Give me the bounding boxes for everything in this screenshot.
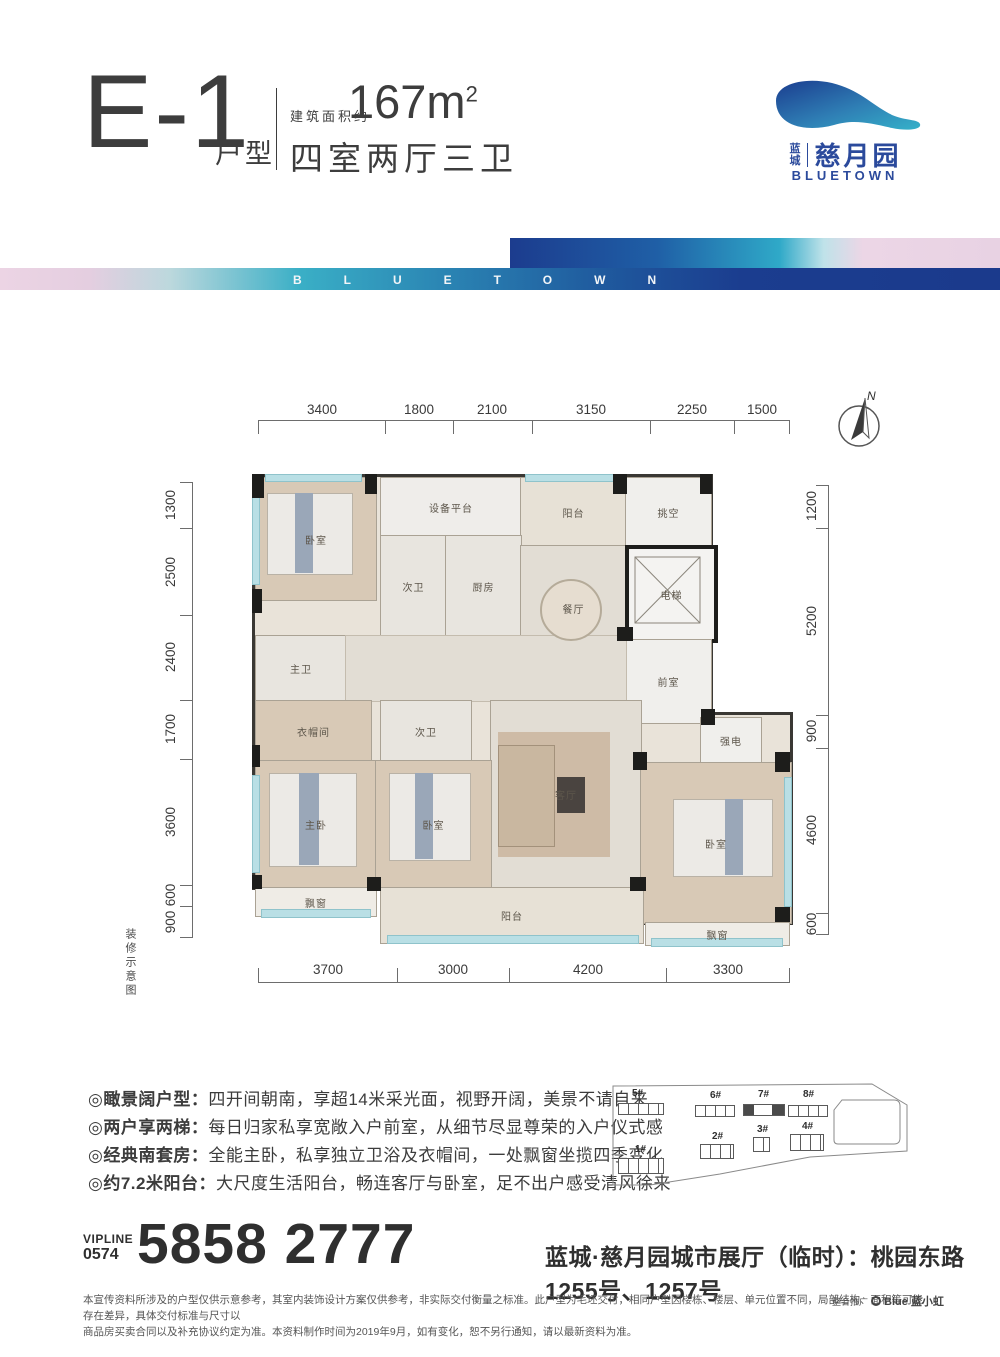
window-bedroom-nw-top [265,474,362,482]
dim-top-5: 2250 [662,402,722,417]
window-bedroom-east-right [784,777,792,907]
area-number: 167m [348,75,466,128]
band-bluetown-letters: BLUETOWN [293,273,698,287]
header-divider [276,88,277,170]
building-label-4: 4# [802,1121,813,1132]
room-bathroom-second-lower: 次卫 [380,700,472,762]
dim-left-7: 900 [163,900,177,944]
feature-desc-1: 四开间朝南，享超14米采光面，视野开阔，美景不请自来 [208,1086,648,1114]
window-balcony-north [525,474,622,482]
building-label-5: 5# [632,1088,643,1099]
feature-title-4: ◎约7.2米阳台： [88,1170,216,1198]
feature-item-4: ◎约7.2米阳台： 大尺度生活阳台，畅连客厅与卧室，足不出户感受清风徐来 [88,1170,613,1198]
disclaimer: 本宣传资料所涉及的户型仅供示意参考，其室内装饰设计方案仅供参考，非实际交付衡量之… [83,1292,933,1340]
floor-plan: 卧室 设备平台 阳台 挑空 次卫 厨房 餐厅 电梯 主卫 前室 衣帽间 次卫 强… [255,477,790,945]
dim-right-5: 600 [804,902,818,946]
dim-bottom-4: 3300 [698,962,758,977]
dim-left-2: 2500 [163,550,177,594]
feature-item-3: ◎经典南套房： 全能主卧，私享独立卫浴及衣帽间，一处飘窗坐揽四季变化 [88,1142,613,1170]
compass-icon: N [833,388,889,454]
room-equipment-platform: 设备平台 [380,477,522,537]
building-3 [753,1137,770,1152]
room-corridor [345,635,627,702]
building-label-2: 2# [712,1131,723,1142]
disclaimer-line-2: 商品房买卖合同以及补充协议约定为准。本资料制作时间为2019年9月，如有变化，恕… [83,1324,933,1340]
building-label-8: 8# [803,1089,814,1100]
dim-bottom-1: 3700 [298,962,358,977]
vipline-label: VIPLINE [83,1233,133,1246]
dim-top-2: 1800 [389,402,449,417]
building-7-highlighted [743,1104,785,1116]
brand-cn: 蓝城 [788,143,801,167]
dim-top-3: 2100 [462,402,522,417]
area-superscript: 2 [466,81,478,106]
promo-logo-icon [871,1296,881,1306]
svg-text:N: N [867,389,876,403]
layout-description: 四室两厅三卫 [290,132,518,180]
sofa [498,745,555,847]
room-void: 挑空 [625,477,712,547]
dim-right-2: 5200 [804,599,818,643]
logo-divider [807,143,808,167]
dimensions-left: 1300 2500 2400 1700 3600 600 900 [160,482,196,938]
building-6 [695,1105,735,1117]
room-cloakroom: 衣帽间 [255,700,372,762]
dim-bottom-3: 4200 [558,962,618,977]
plan-note: 装修示意图 [122,928,138,998]
room-kitchen: 厨房 [445,535,522,637]
dim-left-1: 1300 [163,483,177,527]
dim-left-5: 3600 [163,800,177,844]
vipline-block: VIPLINE 0574 [83,1233,133,1264]
feature-item-2: ◎两户享两梯： 每日归家私享宽敞入户前室，从细节尽显尊荣的入户仪式感 [88,1114,613,1142]
dim-top-4: 3150 [561,402,621,417]
building-label-7: 7# [758,1089,769,1100]
building-label-3: 3# [757,1124,768,1135]
room-bathroom-second-upper: 次卫 [380,535,447,637]
window-balcony-south [387,935,639,944]
window-bay-west [261,909,371,918]
dim-top-1: 3400 [292,402,352,417]
brand-en: BLUETOWN [770,168,920,183]
promo-credit: 整合推广 Blue 蓝小虹 [832,1293,944,1309]
promo-label: 整合推广 [832,1295,868,1308]
building-4 [790,1134,824,1151]
dim-right-3: 900 [804,709,818,753]
gradient-band-upper [510,238,1000,268]
feature-desc-4: 大尺度生活阳台，畅连客厅与卧室，足不出户感受清风徐来 [216,1170,671,1198]
vipline-area-code: 0574 [83,1246,133,1264]
site-plan-outline [610,1078,940,1193]
room-balcony-north: 阳台 [520,477,627,547]
bed-east-runner [725,799,743,875]
bluetown-drop-icon [768,75,923,137]
dimensions-right: 1200 5200 900 4600 600 [800,485,840,935]
dim-left-3: 2400 [163,635,177,679]
building-label-6: 6# [710,1090,721,1101]
feature-title-2: ◎两户享两梯： [88,1114,208,1142]
building-label-1: 1# [635,1144,646,1155]
dim-right-1: 1200 [804,484,818,528]
hotline-number: 5858 2777 [137,1216,415,1273]
unit-suffix: 户型 [215,132,275,171]
building-2 [700,1144,734,1159]
feature-title-3: ◎经典南套房： [88,1142,208,1170]
feature-list: ◎瞰景阔户型： 四开间朝南，享超14米采光面，视野开阔，美景不请自来 ◎两户享两… [88,1086,613,1198]
feature-item-1: ◎瞰景阔户型： 四开间朝南，享超14米采光面，视野开阔，美景不请自来 [88,1086,613,1114]
room-master-bathroom: 主卫 [255,635,347,702]
window-bedroom-nw-left [252,493,260,585]
area-value: 167m2 [348,78,478,125]
dim-left-4: 1700 [163,707,177,751]
dim-right-4: 4600 [804,808,818,852]
feature-desc-2: 每日归家私享宽敞入户前室，从细节尽显尊荣的入户仪式感 [208,1114,663,1142]
feature-desc-3: 全能主卧，私享独立卫浴及衣帽间，一处飘窗坐揽四季变化 [208,1142,663,1170]
dimensions-top: 3400 1800 2100 3150 2250 1500 [258,398,790,438]
dim-top-6: 1500 [732,402,792,417]
feature-title-1: ◎瞰景阔户型： [88,1086,208,1114]
bed-middle-runner [415,773,433,859]
flyer-page: E-1 户型 建筑面积约 167m2 四室两厅三卫 蓝城 慈月园 BLUETOW… [0,0,1000,1357]
dimensions-bottom: 3700 3000 4200 3300 [258,958,790,988]
disclaimer-line-1: 本宣传资料所涉及的户型仅供示意参考，其室内装饰设计方案仅供参考，非实际交付衡量之… [83,1292,933,1324]
building-8 [788,1105,828,1117]
promo-brand: Blue 蓝小虹 [884,1293,944,1309]
window-master-left [252,775,260,873]
building-1 [618,1158,664,1174]
site-plan: 5# 6# 7# 8# 1# 2# 3# 4# [610,1078,940,1193]
building-5 [618,1103,664,1115]
dim-bottom-2: 3000 [423,962,483,977]
